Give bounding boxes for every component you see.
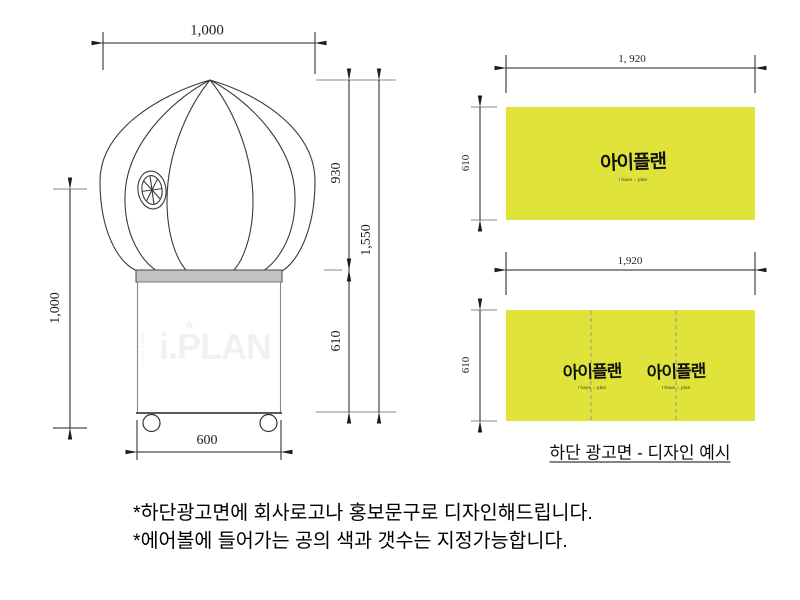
dim-label-balloon-height: 930	[329, 163, 345, 184]
dim-label-banner1-width: 1, 920	[618, 53, 646, 65]
subtitle-part: plan	[597, 386, 606, 391]
subtitle-part-accent: a	[677, 386, 680, 391]
dim-label-total-height: 1,550	[359, 224, 375, 256]
banner1-logo: 아이플랜	[600, 146, 667, 175]
wheel	[260, 415, 277, 432]
spec-sheet-page: { "drawing": { "dim_top_width": "1,000",…	[0, 0, 800, 600]
balloon-drawing	[100, 80, 315, 432]
note-line-2: *에어볼에 들어가는 공의 색과 갯수는 지정가능합니다.	[133, 528, 593, 556]
subtitle-part-accent: a	[593, 386, 596, 391]
balloon-gore-line	[167, 80, 210, 271]
dim-label-top-width: 1,000	[190, 23, 224, 40]
fan-icon	[135, 169, 168, 211]
balloon-outline-right	[210, 80, 315, 271]
banner2-logo-left-subtitle: I have a plan	[578, 386, 607, 391]
dim-label-base-height: 610	[329, 331, 345, 352]
dim-label-banner2-height: 610	[460, 357, 472, 374]
banner2-logo-left: 아이플랜	[562, 356, 621, 383]
banner-bottom	[506, 310, 755, 421]
subtitle-part: plan	[681, 386, 690, 391]
watermark-logo: i.PLAN	[159, 326, 271, 368]
dim-label-left-height: 1,000	[48, 292, 64, 324]
subtitle-part-accent: a	[634, 178, 637, 183]
subtitle-part: plan	[638, 178, 647, 183]
balloon-gore-line	[210, 80, 295, 271]
subtitle-part: I have	[662, 386, 676, 391]
balloon-gore-line	[210, 80, 253, 271]
dim-label-banner2-width: 1,920	[618, 255, 643, 267]
banner-caption: 하단 광고면 - 디자인 예시	[550, 439, 731, 464]
base-band	[136, 270, 282, 282]
wheel	[143, 415, 160, 432]
watermark-tagline: I have a plan	[140, 333, 146, 367]
banner2-logo-right: 아이플랜	[646, 356, 705, 383]
balloon-gore-line	[125, 80, 210, 271]
dim-label-banner1-height: 610	[460, 155, 472, 172]
banner2-logo-right-subtitle: I have a plan	[662, 386, 691, 391]
banner1-logo-subtitle: I have a plan	[619, 178, 648, 183]
subtitle-part: I have	[578, 386, 592, 391]
subtitle-part: I have	[619, 178, 633, 183]
note-line-1: *하단광고면에 회사로고나 홍보문구로 디자인해드립니다.	[133, 500, 593, 528]
dim-label-base-width: 600	[197, 433, 218, 449]
footer-notes: *하단광고면에 회사로고나 홍보문구로 디자인해드립니다. *에어볼에 들어가는…	[133, 500, 593, 555]
